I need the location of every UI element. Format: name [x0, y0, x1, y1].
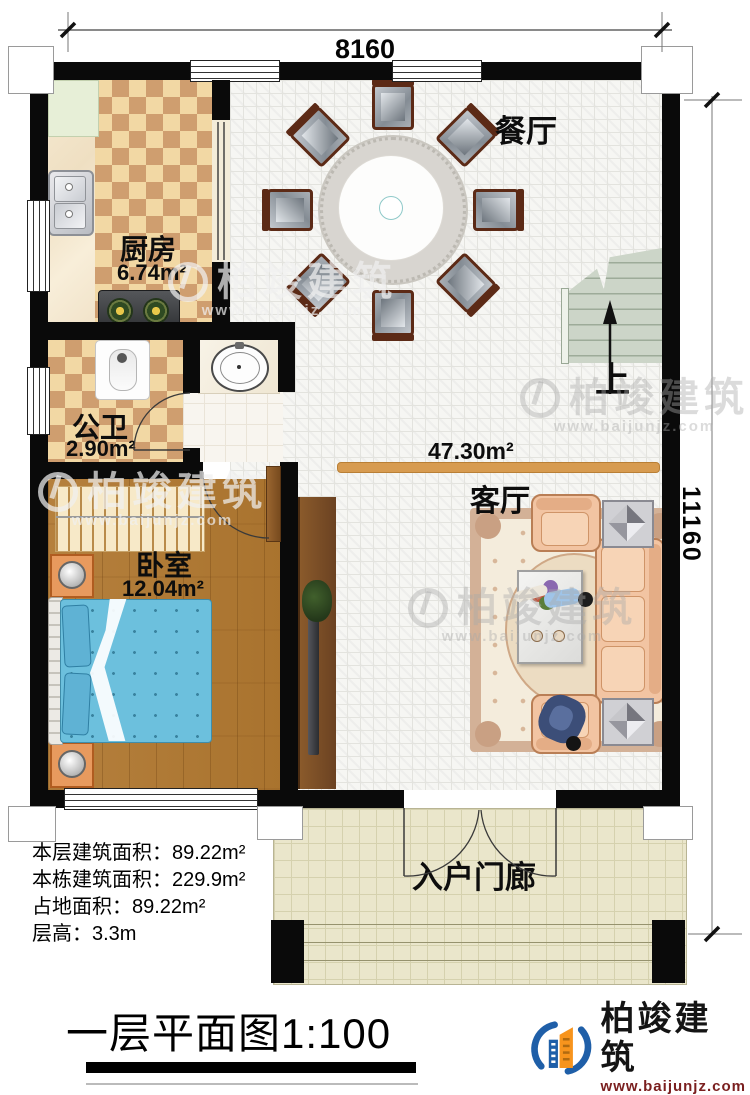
floor-plan-page: 8160 11160 餐厅 厨房 6.74m² 公卫 2.90m² 卧室 12.…: [0, 0, 750, 1095]
annotation-overlay: [0, 0, 750, 1095]
